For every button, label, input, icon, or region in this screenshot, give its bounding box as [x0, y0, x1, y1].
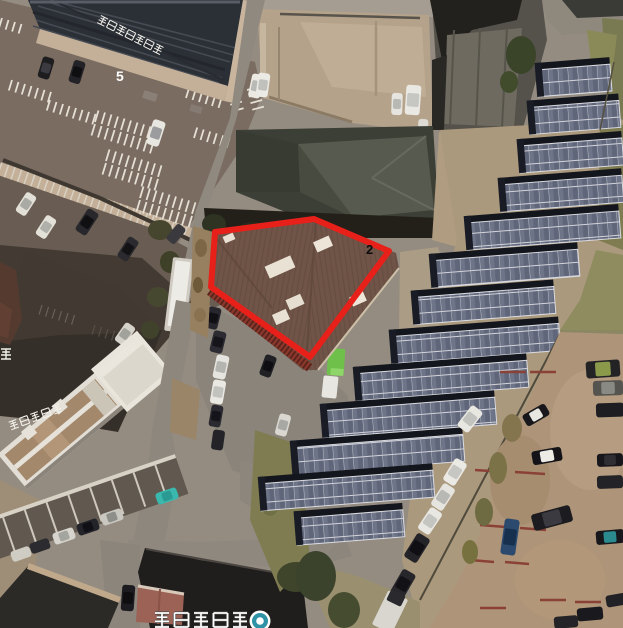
svg-text:5: 5 — [116, 68, 124, 84]
svg-text:2: 2 — [366, 242, 373, 257]
